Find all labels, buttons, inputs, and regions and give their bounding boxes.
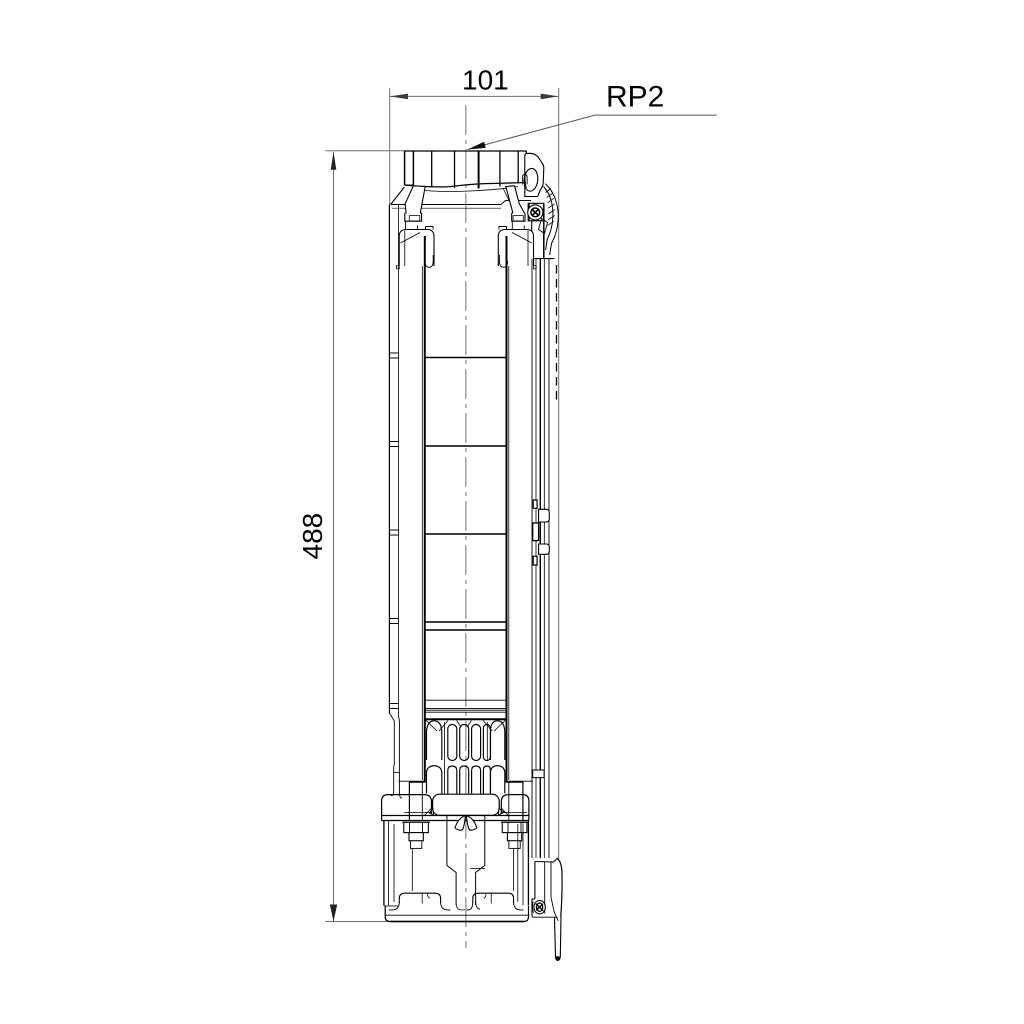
svg-text:101: 101	[462, 65, 509, 96]
svg-text:RP2: RP2	[606, 81, 664, 114]
svg-text:488: 488	[297, 513, 328, 560]
